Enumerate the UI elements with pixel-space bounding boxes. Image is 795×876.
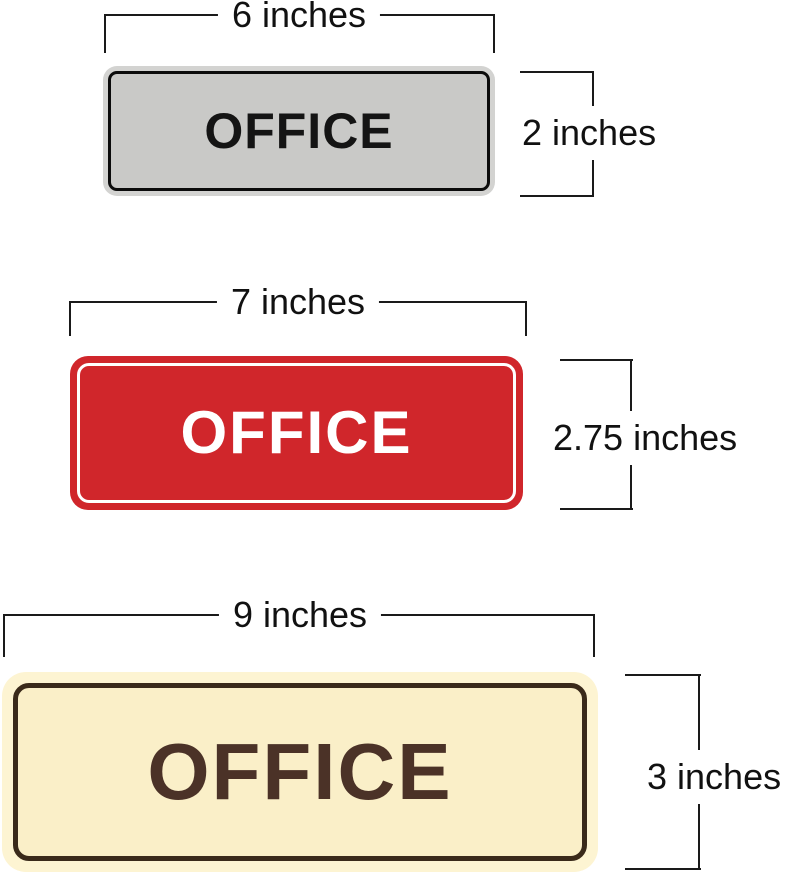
dimension-tick [625,868,701,870]
height-dimension-label-cream: 3 inches [646,750,789,804]
sign-label-red: OFFICE [181,403,413,463]
sign-inner-border-red: OFFICE [77,363,516,503]
sign-label-silver: OFFICE [204,106,393,156]
sign-inner-border-silver: OFFICE [108,71,490,191]
height-dimension-label-red: 2.75 inches [552,411,745,465]
dimension-tick [3,614,5,657]
dimension-tick [560,508,633,510]
dimension-tick [593,614,595,657]
width-dimension-label-red: 7 inches [217,284,379,320]
sign-inner-border-cream: OFFICE [13,683,587,861]
width-dimension-label-cream: 9 inches [219,597,381,633]
dimension-tick [69,301,71,336]
office-sign-cream: OFFICE [2,672,598,872]
sign-label-cream: OFFICE [147,732,452,812]
height-dimension-label-silver: 2 inches [521,106,664,160]
width-dimension-label-silver: 6 inches [218,0,380,33]
office-sign-red: OFFICE [70,356,523,510]
dimension-tick [560,359,633,361]
office-sign-silver: OFFICE [103,66,495,196]
dimension-tick [525,301,527,336]
dimension-tick [520,71,594,73]
dimension-tick [493,14,495,53]
dimension-tick [104,14,106,53]
dimension-tick [625,674,701,676]
dimension-tick [520,195,594,197]
product-dimension-diagram: 6 inches OFFICE 2 inches 7 inches OFFICE… [0,0,795,876]
